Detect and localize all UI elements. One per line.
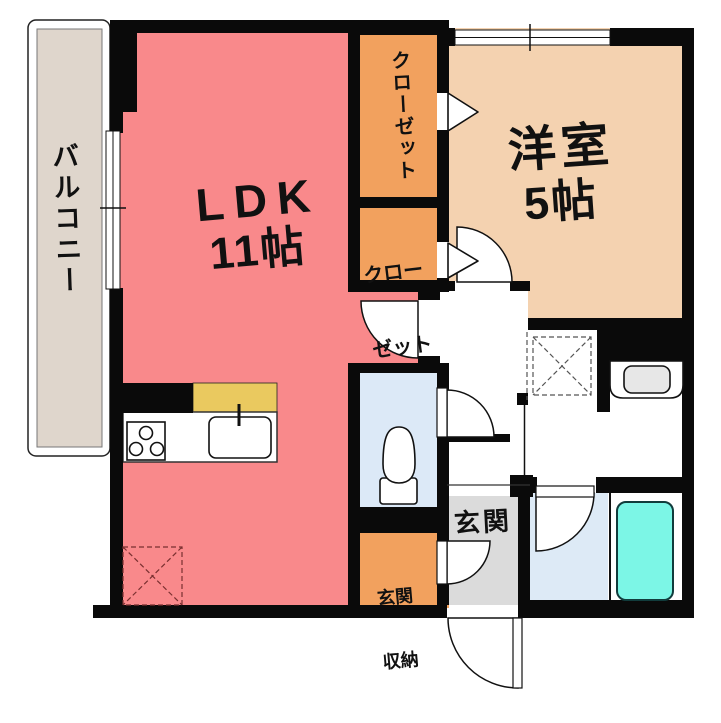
kitchen-counter-top (193, 383, 277, 413)
entrance-storage-label-line1: 玄関 (348, 584, 442, 613)
closet-lower-label-line1: クロー (344, 256, 442, 293)
toilet-icon (380, 427, 417, 504)
ldk-floor (110, 20, 360, 618)
washbasin-icon (610, 361, 683, 398)
floorplan: バルコニー LDK 11帖 洋室 5帖 クローゼット クロー ゼット 玄関 玄関… (0, 0, 721, 723)
entrance-storage-label: 玄関 収納 (345, 541, 451, 718)
bathtub-icon (617, 502, 673, 600)
entrance-storage-label-line2: 収納 (354, 647, 448, 676)
entrance-door-icon (448, 618, 522, 688)
kitchen-stove-icon (127, 422, 165, 460)
washing-machine-space-icon (527, 332, 591, 400)
closet-lower-label-line2: ゼット (353, 330, 451, 367)
entrance-label: 玄関 (439, 507, 526, 539)
